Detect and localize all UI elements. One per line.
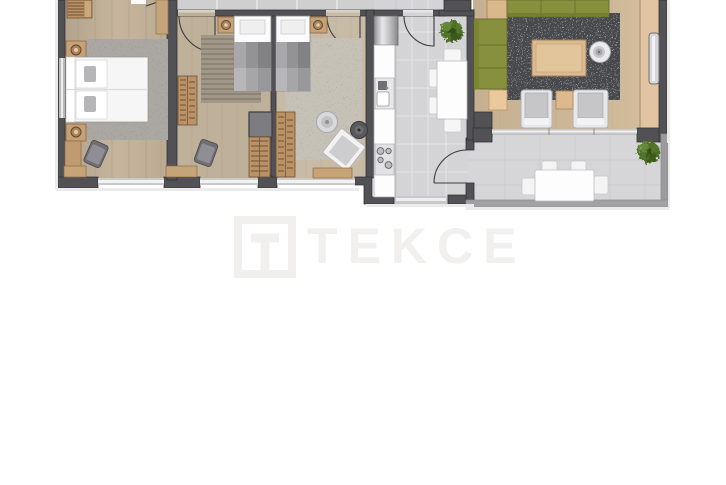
svg-text:TEKCE: TEKCE	[307, 218, 526, 274]
